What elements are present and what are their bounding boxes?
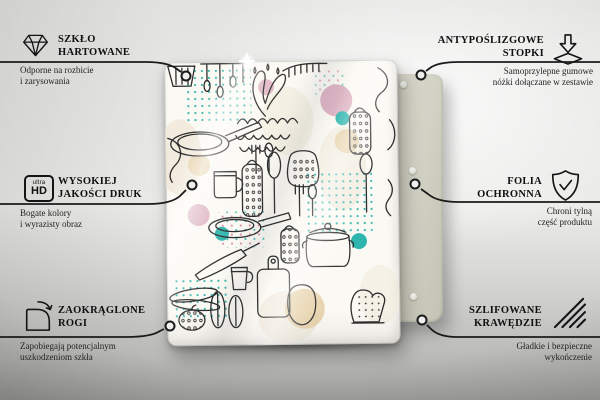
kitchen-doodle-pattern	[164, 60, 400, 347]
ultra-hd-icon-bottom-label: HD	[31, 186, 47, 197]
glass-board	[164, 60, 400, 347]
feature-desc-line: nóżki dołączane w zestawie	[493, 77, 593, 88]
feature-title-line: ANTYPOŚLIZGOWE	[438, 34, 544, 47]
feature-desc-line: Gładkie i bezpieczne	[517, 341, 592, 352]
hatched-edge-icon	[551, 297, 587, 329]
feature-title-line: HARTOWANE	[58, 46, 130, 59]
doodle-mug	[214, 171, 243, 197]
feature-title-line: SZKŁO	[58, 33, 130, 46]
doodle-grater-center	[242, 160, 263, 216]
shield-check-icon	[550, 169, 581, 202]
feature-desc-line: wykończenie	[517, 352, 592, 363]
feature-title-line: FOLIA	[477, 175, 542, 188]
feature-title-line: OCHRONNA	[477, 188, 542, 201]
feature-desc-line: i zarysowania	[20, 76, 93, 87]
adhesive-foot	[400, 81, 407, 88]
feature-desc-line: Odporne na rozbicie	[20, 65, 93, 76]
feature-title-line: ROGI	[58, 317, 145, 330]
feature-desc-line: Chroni tylną	[538, 206, 592, 217]
adhesive-foot	[410, 293, 417, 300]
feature-title-line: KRAWĘDZIE	[469, 317, 542, 330]
feature-title-line: WYSOKIEJ	[58, 175, 142, 188]
feature-title-line: JAKOŚCI DRUK	[58, 188, 142, 201]
doodle-grater-small	[281, 226, 299, 263]
feature-desc-line: Zapobiegają potencjalnym	[20, 341, 116, 352]
feature-title-line: SZLIFOWANE	[469, 304, 542, 317]
adhesive-feet-icon	[550, 33, 586, 66]
feature-desc-line: i wyrazisty obraz	[20, 219, 82, 230]
feature-desc-line: Bogate kolory	[20, 208, 82, 219]
feature-desc-line: Samoprzylepne gumowe	[493, 66, 593, 77]
doodle-knife	[195, 243, 259, 280]
doodle-fork	[295, 185, 303, 216]
ultra-hd-icon: ultra HD	[24, 175, 54, 202]
adhesive-foot	[409, 167, 416, 174]
feature-desc-line: część produktu	[538, 217, 592, 228]
doodle-grater-right	[349, 108, 371, 154]
feature-title-line: STOPKI	[438, 47, 544, 60]
doodle-cup	[231, 267, 252, 289]
doodle-squiggles	[375, 68, 396, 216]
feature-desc-line: uszkodzeniom szkła	[20, 352, 116, 363]
feature-title-line: ZAOKRĄGLONE	[58, 304, 145, 317]
glare-sparkle	[238, 52, 256, 70]
product-infographic: SZKŁO HARTOWANE Odporne na rozbicie i za…	[0, 0, 600, 400]
diamond-icon	[22, 33, 49, 58]
rounded-corner-icon	[22, 300, 54, 332]
